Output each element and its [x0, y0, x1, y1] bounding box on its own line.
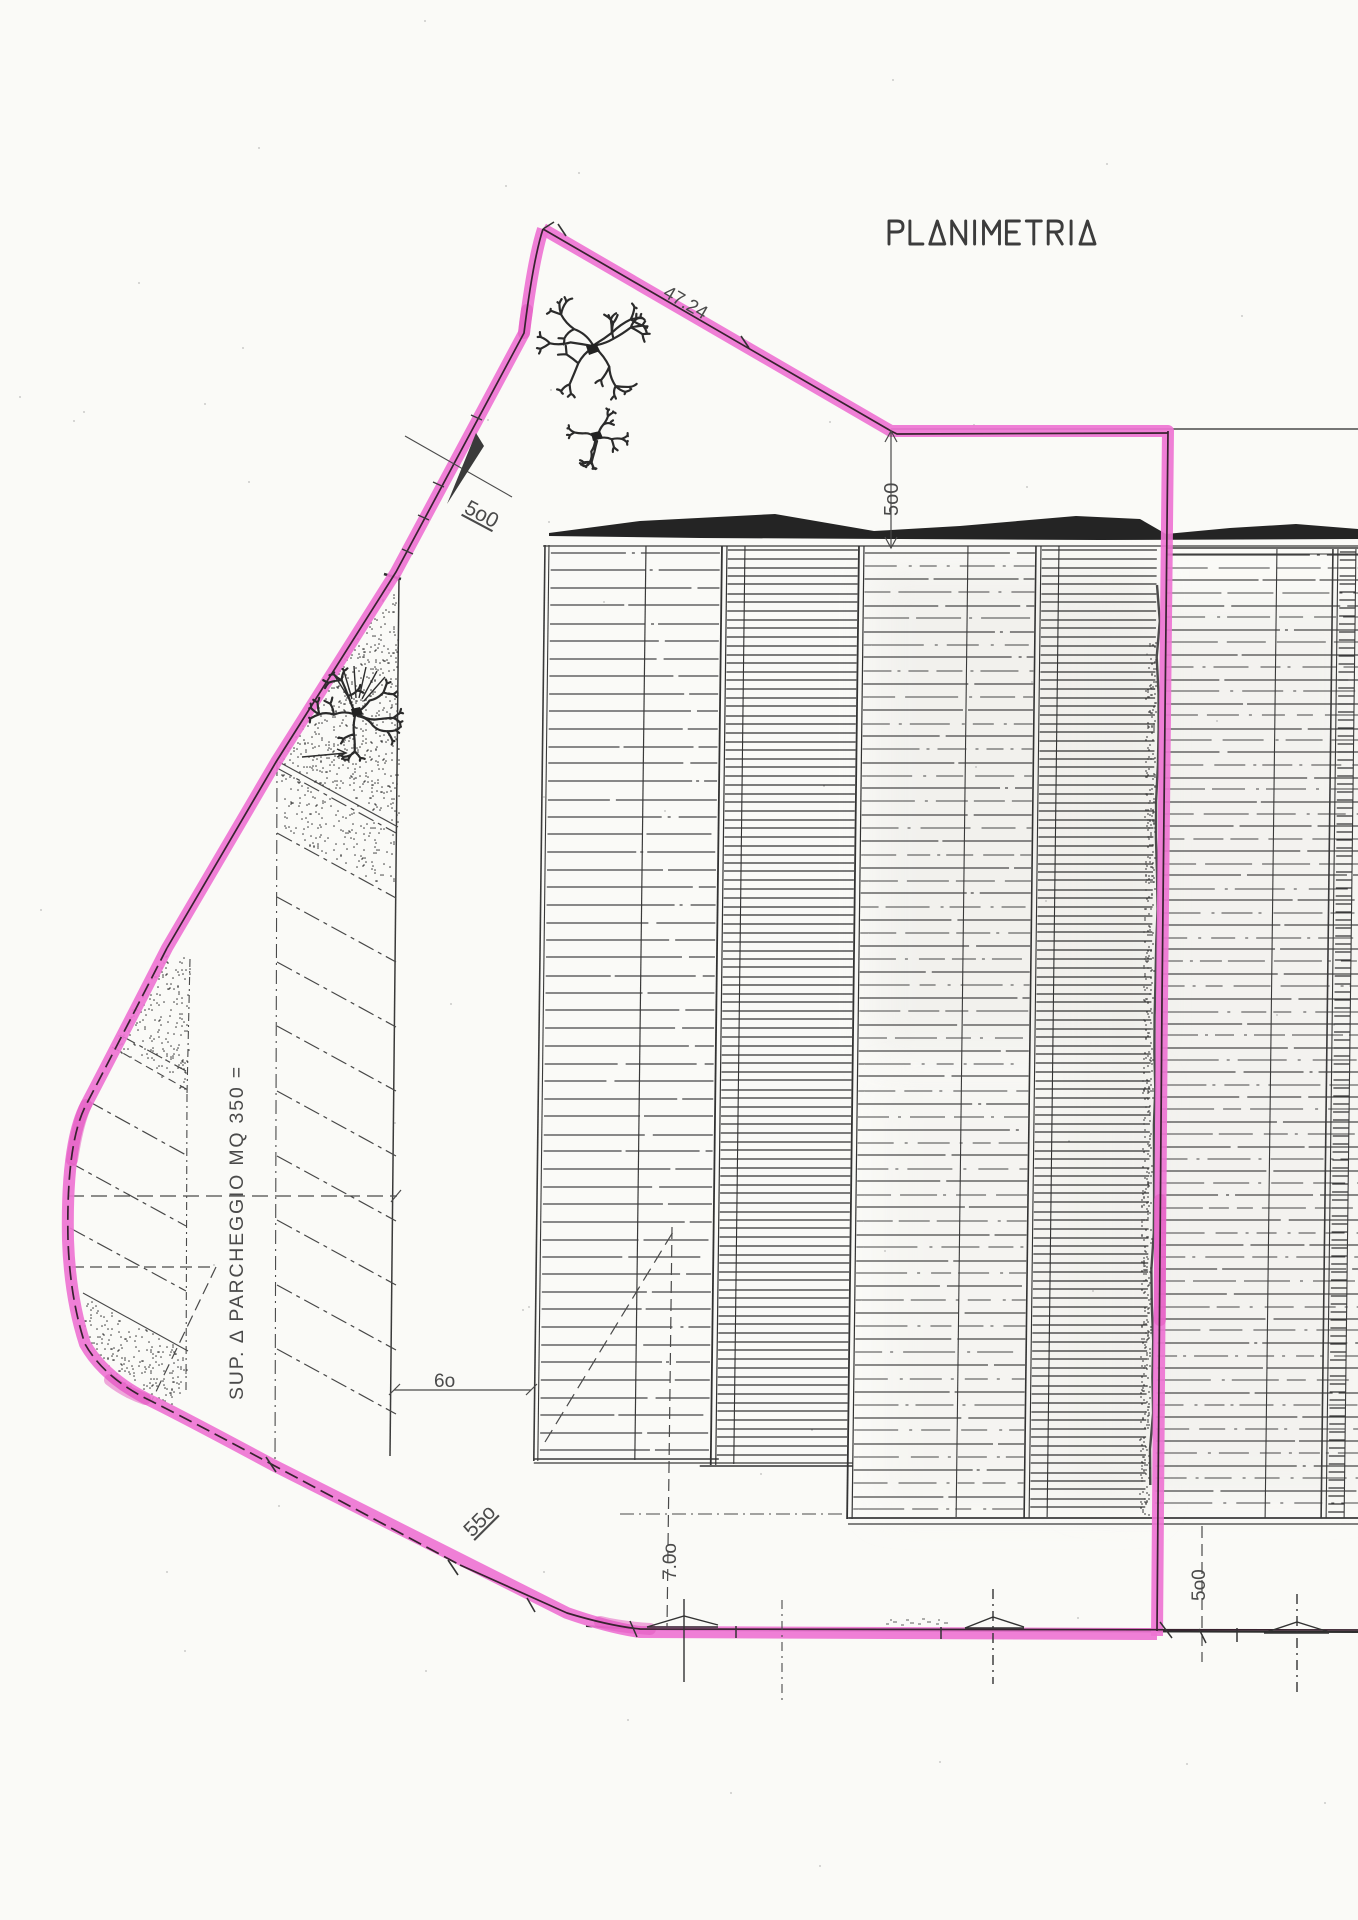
svg-text:SUP. ∆ PARCHEGGIO MQ 350 =: SUP. ∆ PARCHEGGIO MQ 350 = — [226, 1065, 248, 1400]
svg-text:5o0: 5o0 — [881, 483, 903, 516]
svg-text:6o: 6o — [434, 1371, 455, 1392]
svg-text:7.0o: 7.0o — [660, 1543, 681, 1580]
svg-text:5o0: 5o0 — [1189, 1569, 1210, 1601]
